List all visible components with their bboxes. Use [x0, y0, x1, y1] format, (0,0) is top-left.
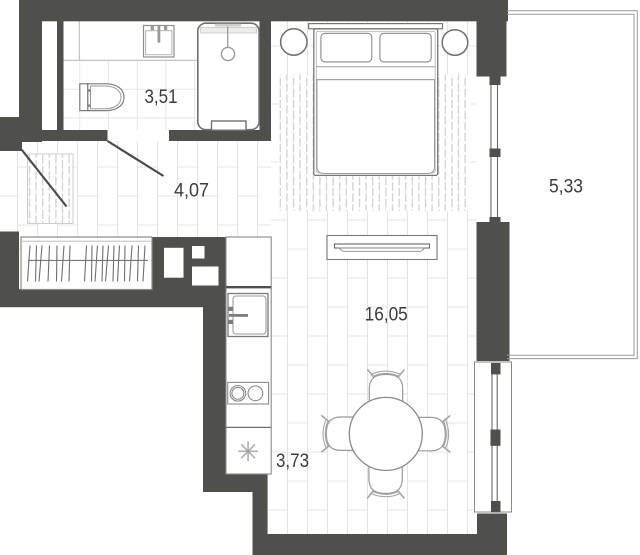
svg-text:5,33: 5,33 — [549, 176, 583, 198]
svg-text:3,73: 3,73 — [276, 450, 309, 472]
svg-text:3,51: 3,51 — [145, 86, 178, 108]
svg-text:16,05: 16,05 — [365, 303, 408, 325]
svg-text:4,07: 4,07 — [174, 180, 209, 202]
